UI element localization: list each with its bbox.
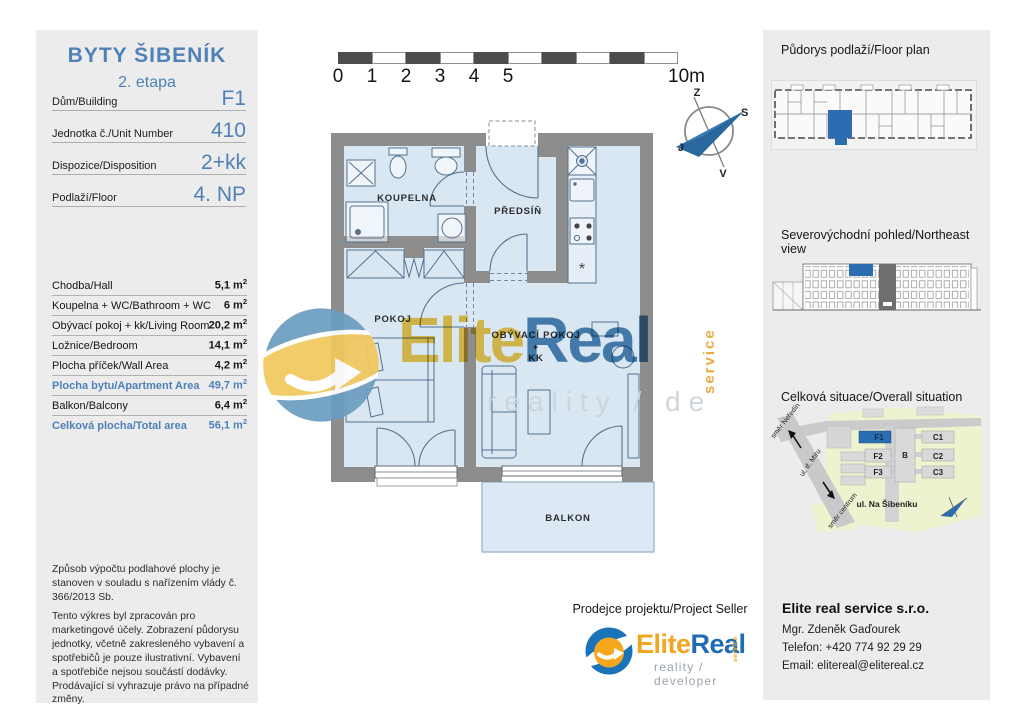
info-row-disposition: Dispozice/Disposition 2+kk <box>52 143 246 175</box>
unit-info-rows: Dům/Building F1 Jednotka č./Unit Number … <box>52 79 246 207</box>
highlighted-unit-elevation <box>849 264 873 276</box>
section-title-northeast-view: Severovýchodní pohled/Northeast view <box>781 228 990 256</box>
building-label-c2: C2 <box>933 452 944 461</box>
contact-email: Email: elitereal@elitereal.cz <box>782 660 924 672</box>
dishwasher-symbol: * <box>579 261 585 278</box>
compass-needle-icon <box>676 111 744 157</box>
section-title-overall-situation: Celková situace/Overall situation <box>781 390 962 404</box>
company-name: Elite real service s.r.o. <box>782 600 929 616</box>
scale-tick: 5 <box>503 66 514 88</box>
info-value: 2+kk <box>201 151 246 175</box>
watermark-tagline: reality / de <box>487 386 747 418</box>
seller-brand: EliteReal <box>636 629 746 660</box>
legal-paragraph: Způsob výpočtu podlahové plochy je stano… <box>52 563 249 605</box>
building-label-c1: C1 <box>933 433 944 442</box>
highlighted-unit-balcony <box>835 138 847 145</box>
table-row: Plocha příček/Wall Area4,2 m2 <box>52 356 247 376</box>
unit-info-panel: BYTY ŠIBENÍK 2. etapa Dům/Building F1 Je… <box>36 30 258 703</box>
shower-icon <box>346 202 388 242</box>
seller-brand-service: service <box>732 638 739 662</box>
scale-bar-segments <box>338 52 678 64</box>
area-label: Obývací pokoj + kk/Living Room <box>52 320 209 332</box>
building-label-c3: C3 <box>933 468 944 477</box>
compass-south-label: J <box>678 142 684 154</box>
scale-segment <box>474 52 508 64</box>
building-label-f1: F1 <box>874 433 884 442</box>
scale-tick: 0 <box>333 66 344 88</box>
compass-north-label: S <box>741 107 748 119</box>
scale-segment <box>440 52 474 64</box>
street-label: ul. Na Šibeníku <box>857 498 918 509</box>
scale-segment <box>610 52 644 64</box>
area-value: 6,4 m2 <box>215 397 247 412</box>
scale-end-label: 10m <box>668 66 705 88</box>
area-label: Celková plocha/Total area <box>52 420 187 432</box>
info-value: 4. NP <box>193 183 246 207</box>
compass-east-label: V <box>719 168 727 180</box>
watermark-service: service <box>701 314 718 394</box>
room-label-bathroom: KOUPELNA <box>377 193 437 204</box>
compass-rose: Z S J V <box>663 86 749 182</box>
table-row: Chodba/Hall5,1 m2 <box>52 276 247 296</box>
area-table: Chodba/Hall5,1 m2 Koupelna + WC/Bathroom… <box>52 276 247 435</box>
toilet-icon <box>390 156 406 178</box>
legal-disclaimer: Způsob výpočtu podlahové plochy je stano… <box>52 563 249 712</box>
contact-person: Mgr. Zdeněk Gaďourek <box>782 624 900 636</box>
scale-segment <box>508 52 542 64</box>
scale-segment <box>644 52 678 64</box>
seller-brand-elite: Elite <box>636 629 691 659</box>
building-label-f3: F3 <box>873 468 883 477</box>
watermark-real: Real <box>523 304 650 376</box>
area-value: 14,1 m2 <box>209 337 247 352</box>
project-title: BYTY ŠIBENÍK <box>36 44 258 68</box>
table-row: Balkon/Balcony6,4 m2 <box>52 396 247 416</box>
room-label-hall: PŘEDSÍŇ <box>494 205 542 217</box>
info-value: F1 <box>221 87 246 111</box>
area-label: Ložnice/Bedroom <box>52 340 138 352</box>
context-panel: Půdorys podlaží/Floor plan Severovýchodn… <box>763 30 990 700</box>
site-plan-map: F1 F2 F3 B C1 C2 C3 ul. Na Šibeníku směr… <box>767 404 985 549</box>
elitereal-logo-icon <box>584 626 634 676</box>
watermark-elite: Elite <box>398 304 523 376</box>
scale-bar: 0 1 2 3 4 5 10m <box>338 52 684 88</box>
table-row: Ložnice/Bedroom14,1 m2 <box>52 336 247 356</box>
area-label: Plocha příček/Wall Area <box>52 360 168 372</box>
scale-tick: 4 <box>469 66 480 88</box>
sink-shelf-icon <box>432 148 460 157</box>
contact-phone: Telefon: +420 774 92 29 29 <box>782 642 922 654</box>
project-seller-block: Prodejce projektu/Project Seller EliteRe… <box>552 598 768 698</box>
info-row-floor: Podlaží/Floor 4. NP <box>52 175 246 207</box>
area-value: 56,1 m2 <box>209 417 247 432</box>
info-label: Jednotka č./Unit Number <box>52 128 173 140</box>
info-label: Podlaží/Floor <box>52 192 117 204</box>
info-row-building: Dům/Building F1 <box>52 79 246 111</box>
washbasin-icon <box>435 157 457 175</box>
highlighted-unit <box>828 110 852 138</box>
scale-segment <box>576 52 610 64</box>
room-label-balcony: BALKON <box>545 513 590 524</box>
scale-tick: 2 <box>401 66 412 88</box>
area-value: 4,2 m2 <box>215 357 247 372</box>
table-row: Koupelna + WC/Bathroom + WC6 m2 <box>52 296 247 316</box>
building-elevation-drawing <box>771 258 983 320</box>
info-label: Dispozice/Disposition <box>52 160 157 172</box>
seller-title: Prodejce projektu/Project Seller <box>552 602 768 616</box>
table-row-total-area: Celková plocha/Total area56,1 m2 <box>52 416 247 435</box>
scale-segment <box>406 52 440 64</box>
scale-tick: 3 <box>435 66 446 88</box>
compass-west-label: Z <box>694 87 701 99</box>
building-label-b: B <box>902 451 908 460</box>
fridge-icon <box>570 179 594 201</box>
area-value: 6 m2 <box>224 297 247 312</box>
area-label: Chodba/Hall <box>52 280 113 292</box>
area-value: 5,1 m2 <box>215 277 247 292</box>
watermark-brand: EliteReal <box>398 308 650 372</box>
legal-paragraph: Tento výkres byl zpracován pro marketing… <box>52 610 249 708</box>
info-row-unit-number: Jednotka č./Unit Number 410 <box>52 111 246 143</box>
scale-segment <box>542 52 576 64</box>
info-value: 410 <box>211 119 246 143</box>
table-row: Obývací pokoj + kk/Living Room20,2 m2 <box>52 316 247 336</box>
scale-segment <box>338 52 372 64</box>
area-label: Plocha bytu/Apartment Area <box>52 380 200 392</box>
area-label: Balkon/Balcony <box>52 400 128 412</box>
building-label-f2: F2 <box>873 452 883 461</box>
building-floor-plan-thumbnail <box>771 80 981 152</box>
entrance-recess <box>489 121 535 146</box>
scale-tick: 1 <box>367 66 378 88</box>
section-title-floor-plan: Půdorys podlaží/Floor plan <box>781 43 930 57</box>
toilet-tank-icon <box>389 148 407 155</box>
watermark-logo-icon <box>262 306 380 424</box>
area-value: 20,2 m2 <box>209 317 247 332</box>
area-value: 49,7 m2 <box>209 377 247 392</box>
info-label: Dům/Building <box>52 96 117 108</box>
table-row-apartment-area: Plocha bytu/Apartment Area49,7 m2 <box>52 376 247 396</box>
seller-tagline: reality / developer <box>654 660 768 688</box>
scale-segment <box>372 52 406 64</box>
area-label: Koupelna + WC/Bathroom + WC <box>52 300 211 312</box>
parking-rows <box>841 452 865 485</box>
